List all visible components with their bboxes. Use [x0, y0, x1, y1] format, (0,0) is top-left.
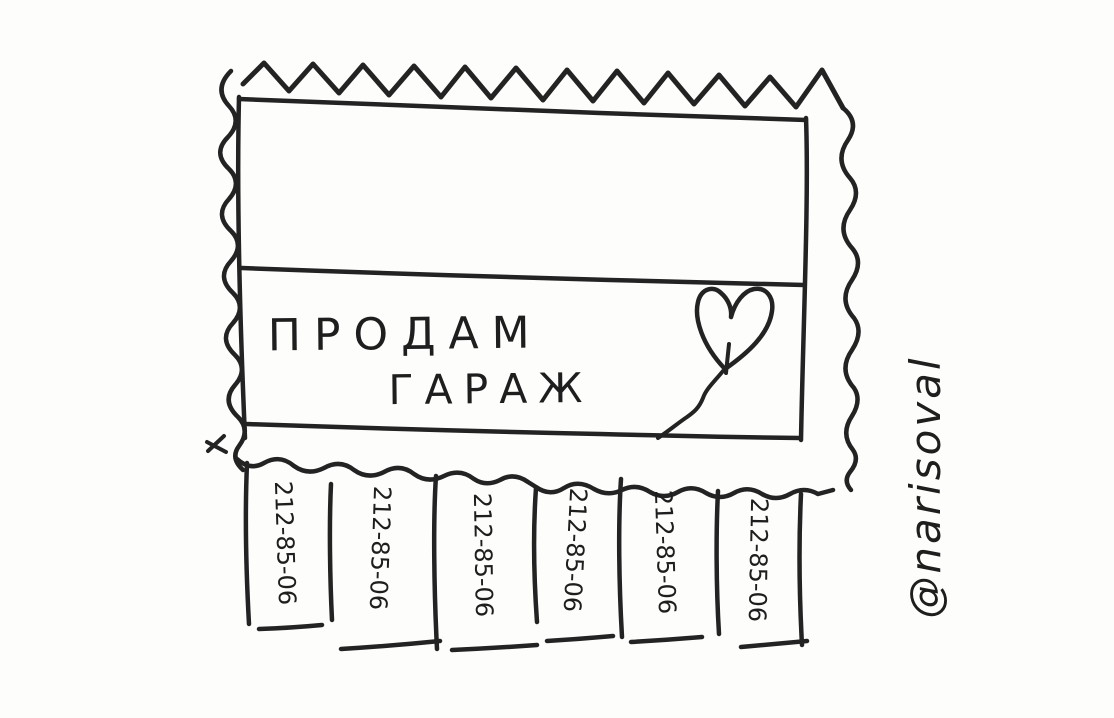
signature-text: @narisoval — [901, 355, 950, 618]
heart-balloon-icon — [658, 289, 772, 438]
strip-bottom-mark — [341, 641, 440, 649]
tear-off-strip: 212-85-06 — [649, 489, 681, 614]
tear-off-strip: 212-85-06 — [269, 480, 301, 605]
poster-bottom-edge — [245, 424, 800, 438]
strip-separator — [717, 491, 719, 634]
poster-title-line1: ПРОДАМ — [268, 308, 543, 362]
border-right-wave — [841, 108, 858, 490]
heart-outline — [697, 289, 772, 369]
artist-signature: @narisoval — [901, 355, 950, 618]
tear-off-strip: 212-85-06 — [558, 487, 592, 613]
strip-separator — [534, 488, 537, 622]
poster-top-edge — [239, 99, 806, 120]
strip-phone-number: 212-85-06 — [558, 487, 592, 613]
balloon-string — [658, 371, 723, 438]
poster-right-edge — [801, 118, 807, 440]
strip-bottom-mark — [631, 637, 702, 642]
strip-bottom-mark — [547, 636, 613, 641]
strip-phone-number: 212-85-06 — [743, 498, 773, 623]
border-corner-tick — [207, 436, 226, 452]
tear-off-strip: 212-85-06 — [743, 498, 773, 623]
strip-separator — [434, 476, 437, 649]
strip-phone-number: 212-85-06 — [269, 480, 301, 605]
strip-separator — [330, 484, 332, 620]
strip-bottom-mark — [259, 625, 322, 629]
strip-phone-number: 212-85-06 — [364, 485, 396, 610]
strip-separator — [619, 479, 622, 637]
strip-bottom-mark — [452, 645, 537, 650]
strip-bottom-mark — [741, 641, 807, 647]
strip-separator — [246, 463, 249, 624]
poster-title-line2: ГАРАЖ — [388, 364, 593, 414]
strip-separator — [800, 494, 802, 645]
tear-off-strip: 212-85-06 — [468, 493, 498, 618]
tear-off-strips: 212-85-06 212-85-06 212-85-06 212-85-06 … — [246, 463, 807, 650]
strip-phone-number: 212-85-06 — [468, 493, 498, 618]
poster-divider-line — [242, 268, 804, 285]
strip-phone-number: 212-85-06 — [649, 489, 681, 614]
garage-ad-sketch: ПРОДАМ ГАРАЖ 2 — [0, 0, 1114, 718]
sketch-canvas: ПРОДАМ ГАРАЖ 2 — [0, 0, 1114, 718]
tear-off-strip: 212-85-06 — [364, 485, 396, 610]
poster-title: ПРОДАМ ГАРАЖ — [268, 307, 594, 415]
